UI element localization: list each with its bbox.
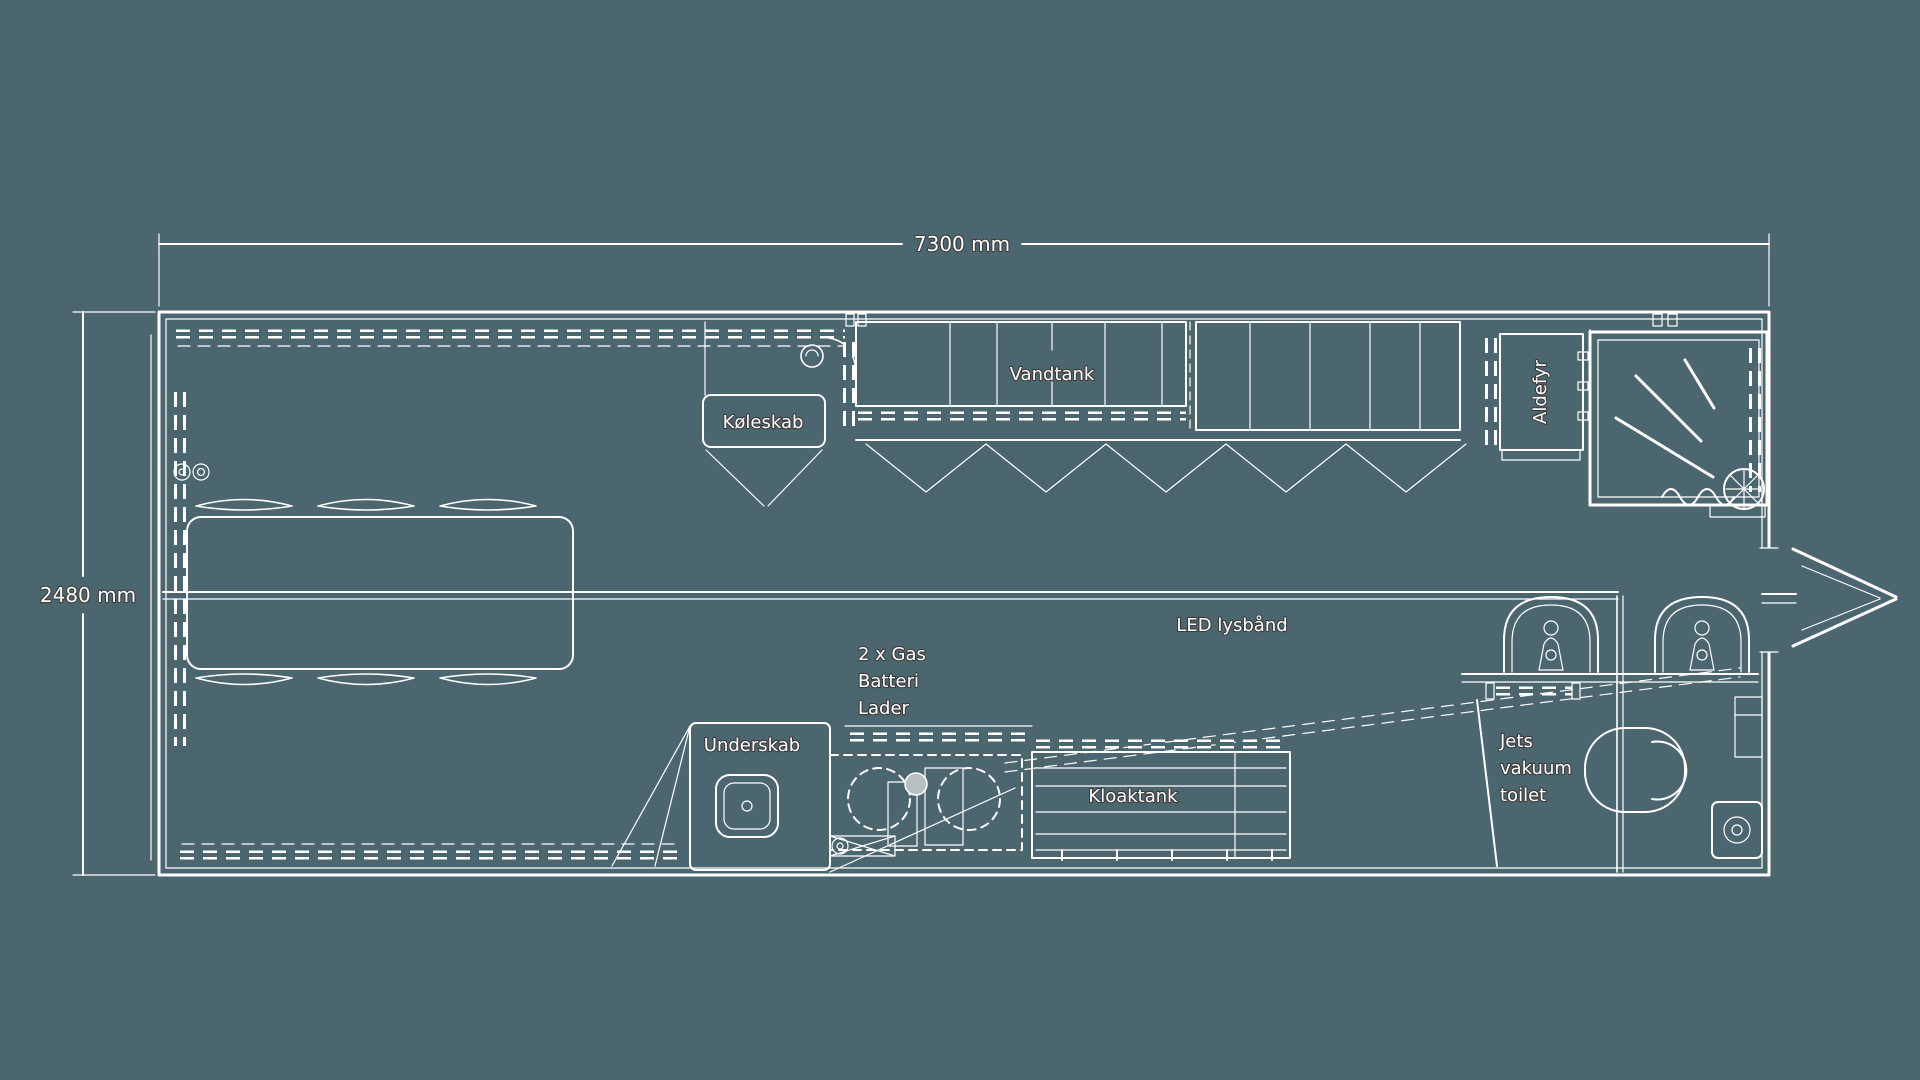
window-hatch-top: [176, 334, 845, 346]
sewage-tank-label: Kloaktank: [1088, 786, 1178, 807]
entry-door: [1754, 548, 1796, 652]
led-strip-line: LED lysbånd: [163, 592, 1618, 636]
washbasin: [1655, 597, 1749, 672]
roof-slope-line: [1005, 668, 1740, 763]
sewage-tank: Kloaktank: [830, 744, 1290, 872]
seat-cushion: [318, 500, 414, 511]
water-tank-label: Vandtank: [1010, 364, 1095, 385]
roof-slope-line: [1005, 677, 1740, 772]
bathroom-wall: [1477, 700, 1497, 866]
vacuum-toilet-label-1: Jets: [1499, 731, 1533, 752]
gas-battery-label-3: Lader: [858, 698, 910, 719]
shower-fan-icon: [1724, 469, 1764, 509]
riser-duct: [801, 338, 856, 430]
gas-bottle: [848, 768, 910, 830]
vent-fan-icon: [801, 345, 823, 367]
fridge: Køleskab: [703, 322, 825, 506]
heater-label: Aldefyr: [1530, 359, 1551, 423]
seat-cushion: [440, 500, 536, 511]
vacuum-toilet-label-2: vakuum: [1500, 758, 1572, 779]
floor-plan: 7300 mm 2480 mm: [0, 0, 1920, 1080]
glass-mark: [1636, 376, 1701, 441]
cistern: [1735, 697, 1762, 757]
under-cabinet-label: Underskab: [704, 735, 800, 756]
hatch-box: [830, 836, 895, 856]
dimension-width-label: 7300 mm: [914, 232, 1010, 256]
bathroom: Jets vakuum toilet: [1005, 596, 1762, 872]
toilet: [1585, 728, 1686, 812]
regulator-icon: [905, 773, 927, 795]
fridge-label: Køleskab: [723, 412, 804, 433]
dimension-left: 2480 mm: [40, 312, 155, 875]
glass-mark: [1616, 418, 1713, 477]
dimension-height-label: 2480 mm: [40, 583, 136, 607]
wall-hatch-left: [174, 392, 209, 746]
seat-cushion: [440, 674, 536, 685]
cabinet-door-swings: [866, 444, 1466, 492]
vacuum-toilet-label-3: toilet: [1500, 785, 1546, 806]
door-swing: [655, 726, 690, 866]
led-strip-label: LED lysbånd: [1176, 615, 1287, 636]
shower: [1590, 332, 1767, 517]
heater-aldefyr: Aldefyr: [1491, 330, 1590, 470]
door-swing: [612, 726, 690, 866]
under-cabinet: Underskab: [612, 723, 830, 870]
seat-cushion: [196, 500, 292, 511]
washbasin: [1504, 597, 1598, 672]
vacuum-pump: [1712, 802, 1762, 858]
window-hatch-bottom: [180, 844, 682, 855]
gas-battery-label-2: Batteri: [858, 671, 919, 692]
gas-battery-label-1: 2 x Gas: [858, 644, 926, 665]
seat-cushion: [318, 674, 414, 685]
sink: [716, 775, 778, 837]
glass-mark: [1685, 360, 1714, 408]
gas-compartment: 2 x Gas Batteri Lader: [830, 644, 1032, 856]
seat-cushion: [196, 674, 292, 685]
floor-plan-svg: 7300 mm 2480 mm: [0, 0, 1920, 1080]
chassis-line: [830, 788, 1015, 872]
dimension-top: 7300 mm: [159, 232, 1769, 306]
entry-arrow: [1793, 549, 1896, 646]
kitchen: Køleskab Vandtank: [703, 322, 1466, 506]
